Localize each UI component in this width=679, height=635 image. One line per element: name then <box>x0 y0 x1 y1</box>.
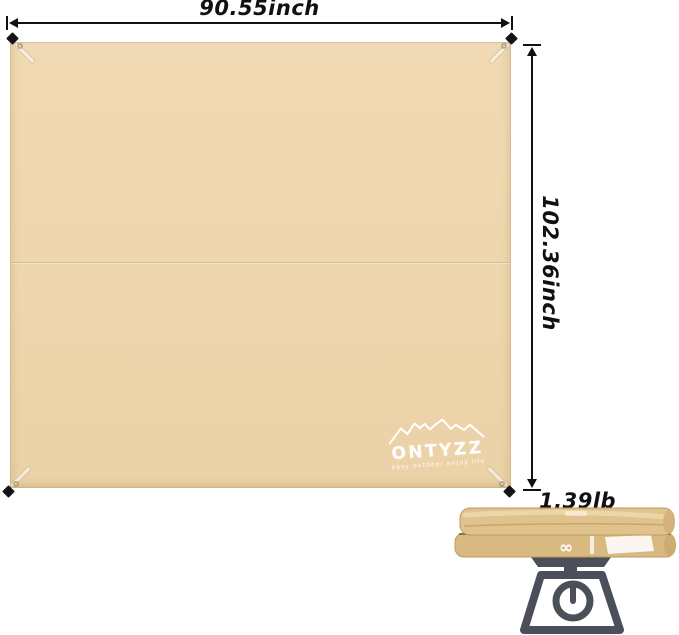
arrowhead-down-icon <box>527 479 537 488</box>
stake-ring <box>501 43 507 49</box>
printed-infinity-symbol: ∞ <box>559 538 573 558</box>
kitchen-scale-icon <box>498 549 648 635</box>
stake-strap <box>486 466 509 489</box>
arrowhead-up-icon <box>527 47 537 56</box>
height-dimension-label: 102.36inch <box>538 195 562 331</box>
height-arrow-top-tick <box>523 44 541 46</box>
width-arrow-line <box>11 22 508 24</box>
product-dimension-diagram: 90.55inch ONTYZZ easy outdoor enjoy life <box>0 0 679 635</box>
height-arrow-line <box>531 49 533 486</box>
stake-ring <box>17 43 23 49</box>
stake-strap <box>488 42 511 65</box>
corner-stake-bottom-left <box>2 458 42 498</box>
width-dimension-label: 90.55inch <box>0 0 519 20</box>
tarp-center-seam <box>11 262 510 263</box>
corner-stake-bottom-right <box>476 458 516 498</box>
stake-ring <box>499 481 505 487</box>
tarp-graphic: ONTYZZ easy outdoor enjoy life <box>10 42 511 488</box>
corner-stake-top-left <box>6 32 46 72</box>
corner-stake-top-right <box>478 32 518 72</box>
brand-logo: ONTYZZ easy outdoor enjoy life <box>383 414 490 472</box>
stake-ring <box>13 481 19 487</box>
folded-tarp-graphic: ∞ <box>453 506 679 560</box>
